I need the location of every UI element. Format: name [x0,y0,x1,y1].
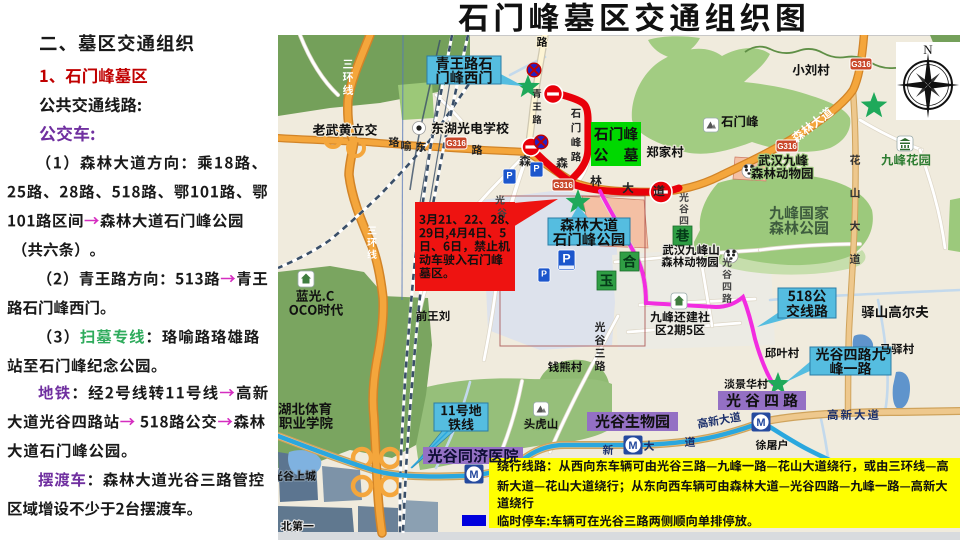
svg-text:M: M [469,469,478,481]
svg-text:G316: G316 [446,139,466,148]
svg-text:M: M [628,440,637,452]
svg-text:P: P [506,170,512,180]
svg-text:G316: G316 [777,142,797,151]
svg-text:P: P [533,163,539,173]
svg-text:P: P [541,269,547,279]
svg-text:P: P [562,251,570,265]
svg-text:N: N [923,42,933,57]
svg-text:G316: G316 [553,181,573,190]
svg-text:G316: G316 [851,60,871,69]
svg-text:M: M [756,417,765,429]
